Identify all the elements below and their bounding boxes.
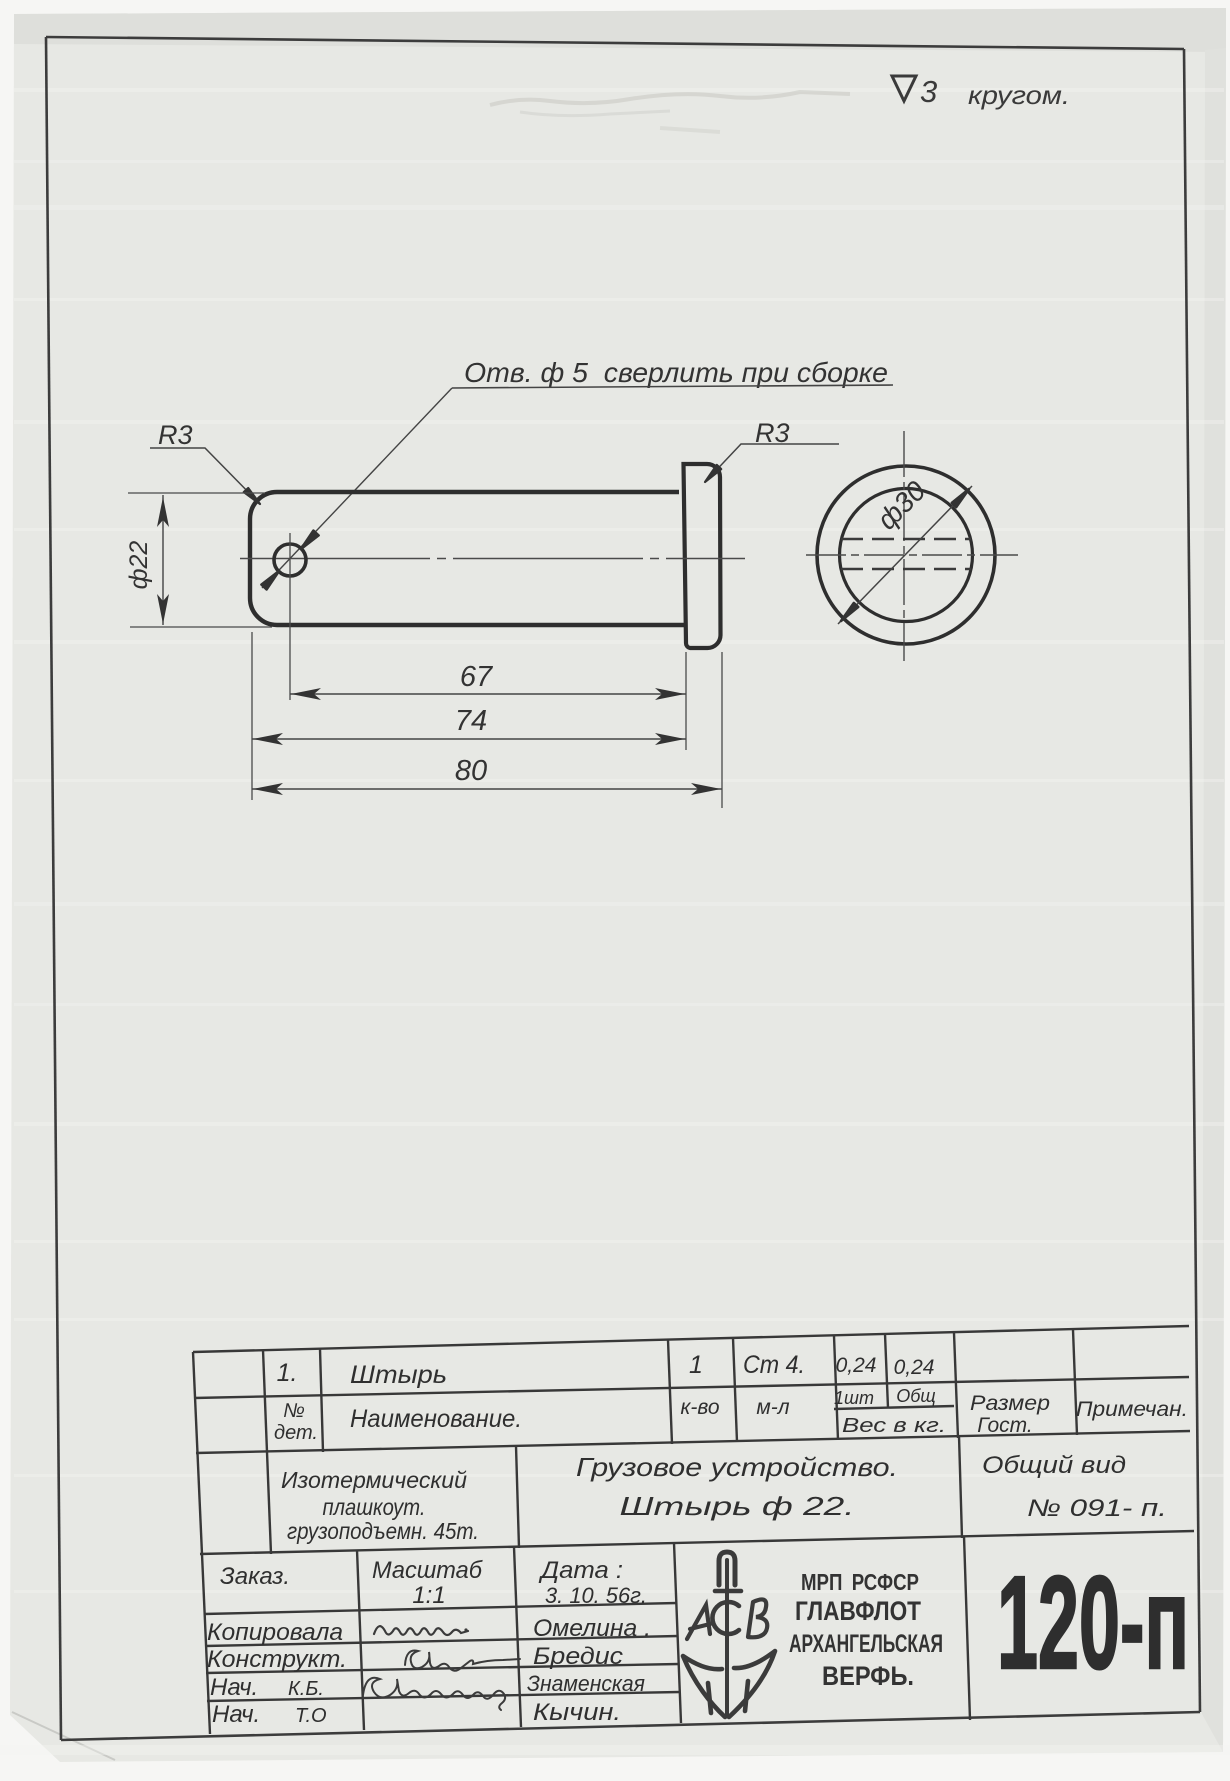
svg-text:Омелина .: Омелина . bbox=[533, 1615, 651, 1642]
svg-text:1шт: 1шт bbox=[834, 1388, 874, 1408]
svg-text:Конструкт.: Конструкт. bbox=[207, 1646, 347, 1673]
svg-text:к-во: к-во bbox=[680, 1396, 719, 1419]
svg-text:Кычин.: Кычин. bbox=[533, 1699, 621, 1726]
svg-text:Копировала: Копировала bbox=[207, 1619, 343, 1646]
svg-text:Размер: Размер bbox=[970, 1392, 1050, 1415]
svg-text:Общ: Общ bbox=[896, 1386, 935, 1406]
svg-text:Нач.: Нач. bbox=[212, 1701, 260, 1728]
svg-text:Наименование.: Наименование. bbox=[350, 1405, 522, 1433]
svg-text:1:1: 1:1 bbox=[412, 1582, 445, 1609]
svg-text:Общий вид: Общий вид bbox=[982, 1452, 1126, 1479]
svg-text:Т.О: Т.О bbox=[295, 1705, 327, 1727]
svg-text:Отв. ф 5 сверлить при сборке: Отв. ф 5 сверлить при сборке bbox=[464, 357, 888, 388]
svg-text:80: 80 bbox=[455, 755, 487, 787]
svg-text:Вес в кг.: Вес в кг. bbox=[842, 1415, 946, 1437]
svg-text:№ 091- п.: № 091- п. bbox=[1027, 1495, 1167, 1522]
svg-text:Гост.: Гост. bbox=[977, 1414, 1033, 1437]
svg-text:Штырь ф 22.: Штырь ф 22. bbox=[620, 1491, 855, 1521]
svg-text:74: 74 bbox=[455, 705, 487, 737]
svg-text:0,24: 0,24 bbox=[894, 1356, 935, 1379]
svg-text:ВЕРФЬ.: ВЕРФЬ. bbox=[822, 1661, 914, 1691]
svg-text:грузоподъемн. 45т.: грузоподъемн. 45т. bbox=[287, 1518, 479, 1544]
svg-text:дет.: дет. bbox=[274, 1422, 318, 1444]
svg-text:67: 67 bbox=[460, 661, 494, 693]
svg-text:Ст 4.: Ст 4. bbox=[743, 1351, 805, 1379]
svg-text:3: 3 bbox=[920, 74, 937, 109]
svg-text:Бредис: Бредис bbox=[533, 1643, 623, 1670]
svg-text:120-п: 120-п bbox=[997, 1549, 1189, 1696]
svg-text:Нач.: Нач. bbox=[210, 1674, 258, 1701]
svg-text:Дата :: Дата : bbox=[538, 1557, 623, 1584]
svg-text:К.Б.: К.Б. bbox=[288, 1678, 324, 1700]
svg-text:1: 1 bbox=[689, 1351, 703, 1379]
svg-text:Заказ.: Заказ. bbox=[220, 1563, 290, 1590]
svg-text:3. 10. 56г.: 3. 10. 56г. bbox=[545, 1583, 647, 1608]
svg-text:Штырь: Штырь bbox=[350, 1361, 447, 1389]
svg-text:м-л: м-л bbox=[756, 1396, 789, 1419]
svg-text:МРП РСФСР: МРП РСФСР bbox=[801, 1569, 919, 1595]
svg-text:кругом.: кругом. bbox=[968, 80, 1070, 110]
svg-text:1.: 1. bbox=[277, 1359, 298, 1387]
svg-text:Грузовое устройство.: Грузовое устройство. bbox=[576, 1452, 898, 1482]
svg-text:0,24: 0,24 bbox=[836, 1354, 877, 1377]
svg-text:ГЛАВФЛОТ: ГЛАВФЛОТ bbox=[795, 1596, 921, 1626]
svg-text:ф22: ф22 bbox=[125, 541, 153, 590]
svg-text:плашкоут.: плашкоут. bbox=[323, 1494, 426, 1520]
svg-text:R3: R3 bbox=[158, 420, 193, 450]
svg-text:Знаменская: Знаменская bbox=[527, 1671, 645, 1696]
svg-text:АРХАНГЕЛЬСКАЯ: АРХАНГЕЛЬСКАЯ bbox=[789, 1630, 943, 1658]
svg-text:Масштаб: Масштаб bbox=[372, 1557, 483, 1584]
svg-text:№: № bbox=[283, 1400, 305, 1422]
svg-text:Примечан.: Примечан. bbox=[1076, 1398, 1188, 1421]
svg-text:Изотермический: Изотермический bbox=[281, 1467, 467, 1493]
